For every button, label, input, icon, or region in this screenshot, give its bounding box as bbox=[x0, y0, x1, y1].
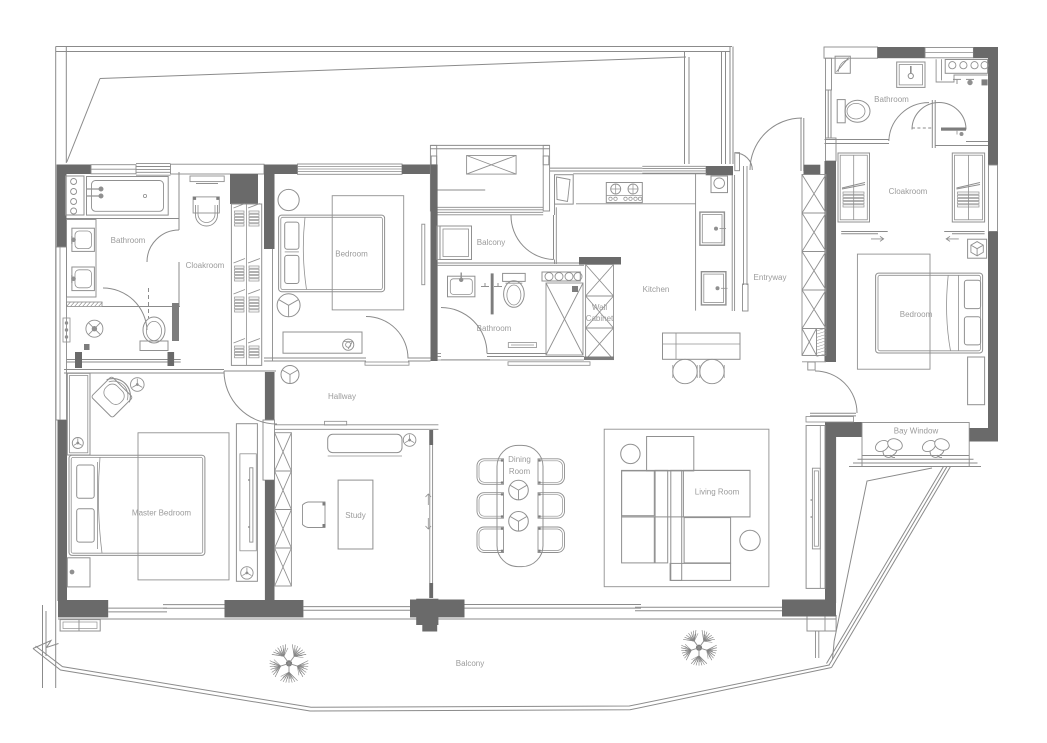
svg-text:Kitchen: Kitchen bbox=[643, 285, 670, 294]
svg-text:Hallway: Hallway bbox=[328, 392, 356, 401]
svg-text:Dining: Dining bbox=[508, 455, 531, 464]
svg-text:Entryway: Entryway bbox=[754, 273, 787, 282]
svg-text:Bathroom: Bathroom bbox=[874, 95, 909, 104]
svg-text:Cloakroom: Cloakroom bbox=[889, 187, 928, 196]
svg-text:Balcony: Balcony bbox=[477, 238, 505, 247]
svg-text:Bay Window: Bay Window bbox=[894, 427, 939, 436]
svg-text:Bedroom: Bedroom bbox=[900, 310, 933, 319]
svg-text:Master Bedroom: Master Bedroom bbox=[132, 509, 191, 518]
svg-text:Bedroom: Bedroom bbox=[335, 250, 368, 259]
svg-text:Cloakroom: Cloakroom bbox=[186, 261, 225, 270]
svg-text:Living Room: Living Room bbox=[695, 488, 740, 497]
svg-text:Room: Room bbox=[509, 467, 531, 476]
svg-text:Bathroom: Bathroom bbox=[111, 236, 146, 245]
svg-text:Cabinet: Cabinet bbox=[586, 314, 614, 323]
svg-text:Study: Study bbox=[345, 511, 365, 520]
svg-text:Balcony: Balcony bbox=[456, 659, 484, 668]
svg-text:Wall: Wall bbox=[592, 303, 607, 312]
